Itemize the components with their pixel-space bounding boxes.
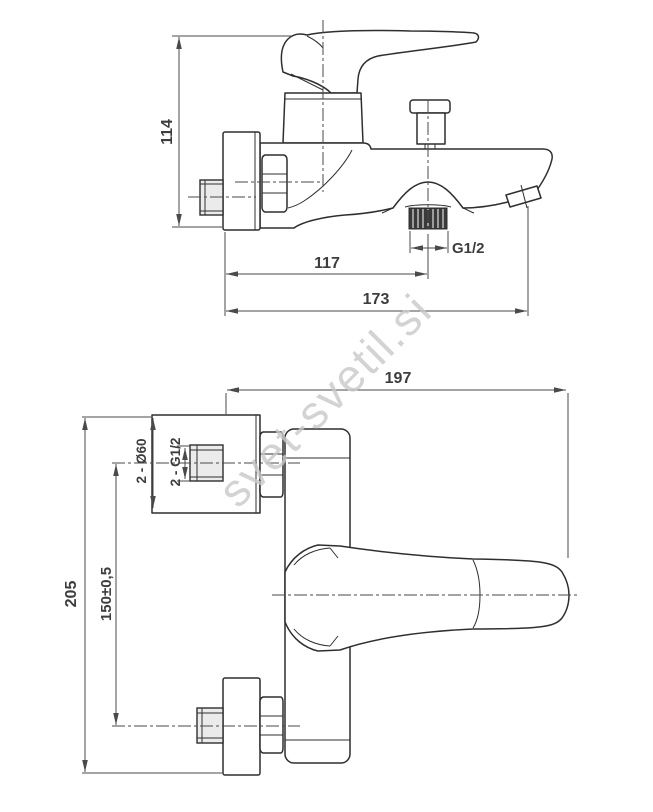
dimension-117: 117: [225, 232, 428, 316]
diverter-knob: [410, 100, 450, 152]
handle-front: [285, 545, 569, 651]
dim-114-label: 114: [159, 119, 176, 145]
dim-flange-label: 2 - Ø60: [134, 438, 149, 483]
dim-g12-outlet-label: G1/2: [452, 240, 485, 257]
handle-lever: [281, 30, 478, 93]
dim-150-label: 150±0,5: [98, 567, 115, 621]
dim-inlet-thread-label: 2 - G1/2: [168, 438, 183, 487]
faucet-drawing: 114 117 173 G1/2: [0, 0, 653, 812]
side-view: 114 117 173 G1/2: [159, 20, 552, 316]
dimension-g12-outlet: G1/2: [410, 231, 485, 257]
plan-view: 197 205 150±0,5 2 - Ø60 2 - G1/2: [63, 370, 580, 775]
dim-117-label: 117: [314, 255, 340, 272]
dim-205-label: 205: [63, 581, 80, 608]
faucet-body-spout: [260, 143, 552, 228]
technical-drawing-page: 114 117 173 G1/2: [0, 0, 653, 812]
dim-173-label: 173: [363, 291, 390, 308]
dimension-150: 150±0,5: [98, 464, 116, 725]
union-nut-side: [262, 155, 287, 212]
dim-197-label: 197: [385, 370, 412, 387]
wall-flange-side: [223, 132, 260, 230]
